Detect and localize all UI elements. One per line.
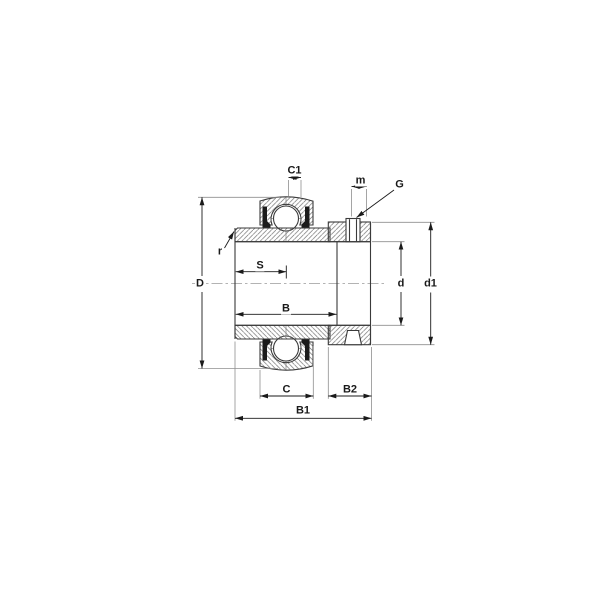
leader-r — [225, 232, 235, 249]
dim-label-B1: B1 — [295, 406, 311, 417]
bearing-bottom-half — [235, 325, 330, 370]
inner-ring-top-band — [235, 228, 330, 242]
dim-label-r: r — [217, 246, 223, 257]
dim-label-B2: B2 — [342, 384, 358, 395]
dimension-c1 — [289, 178, 302, 198]
set-screw — [346, 219, 360, 242]
dim-label-g: G — [394, 179, 405, 190]
leader-g — [357, 190, 395, 218]
dim-label-B: B — [281, 303, 291, 314]
ball-bottom — [274, 336, 299, 361]
inner-ring-bottom-band — [235, 325, 330, 339]
dim-label-C: C — [282, 385, 292, 396]
ball-top — [274, 206, 299, 231]
bearing-cross-section-svg — [0, 0, 600, 600]
bearing-top-half — [235, 197, 330, 242]
dim-label-c1: C1 — [286, 166, 302, 177]
dim-label-D: D — [195, 279, 205, 290]
dim-label-d: d — [397, 279, 406, 290]
dim-label-s: S — [255, 261, 264, 272]
dim-label-m: m — [355, 175, 367, 186]
dim-label-d1: d1 — [423, 279, 438, 290]
technical-drawing-canvas: C1 m G r S D B d d1 C B2 B1 — [0, 0, 600, 600]
set-screw-recess-bottom — [345, 331, 362, 345]
